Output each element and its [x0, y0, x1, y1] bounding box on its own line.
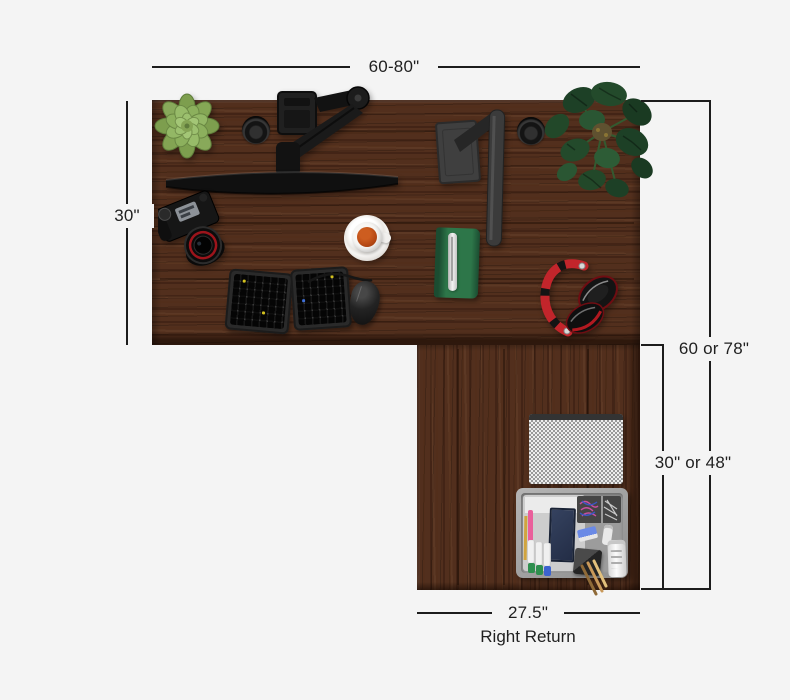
- white-marker: [544, 543, 551, 566]
- speckled-mouse-pad: [529, 414, 623, 484]
- split-keyboard-left-half: [224, 268, 293, 334]
- dim-label-return-width: 27.5": [492, 601, 564, 625]
- key-accent: [302, 299, 305, 302]
- pen: [448, 233, 457, 291]
- keyboard-keys: [230, 274, 288, 330]
- dim-label-left-depth: 30": [100, 204, 154, 228]
- succulent-plant: [152, 91, 222, 161]
- dim-label-right-total: 60 or 78": [668, 337, 760, 361]
- tea-cup-with-saucer: [343, 214, 393, 264]
- dim-tick-return-bottom: [641, 588, 664, 590]
- green-marker-cap: [536, 565, 543, 575]
- compartment-divider: [601, 496, 603, 523]
- dim-tick-return-top: [641, 344, 664, 346]
- small-parts-compartments: [577, 496, 621, 523]
- dimension-diagram: 60-80" 30" 60 or 78" 30" or 48" 27.5" Ri…: [0, 0, 790, 700]
- wood-seam: [457, 349, 459, 585]
- mouse-pad-edge: [529, 414, 623, 420]
- green-marker-cap: [528, 563, 535, 573]
- tea: [357, 227, 377, 247]
- red-headphones: [538, 256, 622, 340]
- dslr-camera: [158, 190, 242, 274]
- wood-seam: [503, 349, 505, 585]
- return-caption: Right Return: [448, 626, 608, 648]
- white-marker: [536, 542, 543, 565]
- dim-label-top-width: 60-80": [350, 55, 438, 79]
- dim-tick-right-top: [641, 100, 710, 102]
- pencils: [572, 552, 617, 602]
- dim-label-return-length: 30" or 48": [646, 451, 740, 475]
- dim-tick-right-bottom: [662, 588, 711, 590]
- notebook-with-pen: [434, 227, 480, 298]
- white-marker: [528, 540, 535, 563]
- blue-marker-cap: [544, 566, 551, 576]
- key-accent: [262, 311, 265, 314]
- key-accent: [243, 280, 246, 283]
